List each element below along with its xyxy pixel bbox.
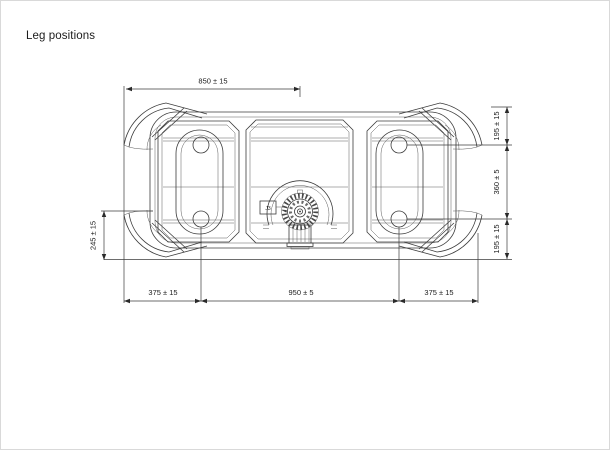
left-panel [158, 121, 239, 242]
dim-text-right-middle: 360 ± 5 [492, 170, 501, 195]
leg-pad-top-left [124, 103, 207, 150]
leg-position-back-right [391, 211, 407, 227]
dim-text-right-bottom: 195 ± 15 [492, 224, 501, 253]
dim-text-bottom-left: 375 ± 15 [148, 288, 177, 297]
panel-rib-lines [163, 127, 443, 223]
dimension-left-height: 245 ± 15 [89, 211, 154, 260]
dim-text-top-width: 850 ± 15 [198, 77, 227, 86]
pump-gear [282, 190, 319, 230]
leg-pad-top-right [399, 103, 482, 150]
leg-position-back-left [193, 211, 209, 227]
dim-text-bottom-center: 950 ± 5 [289, 288, 314, 297]
drawing-page: Leg positions [0, 0, 610, 450]
left-leg-mounts [176, 130, 223, 234]
dim-text-left-height: 245 ± 15 [89, 221, 98, 250]
part-label-text: J3 [265, 206, 271, 212]
technical-drawing-canvas: J3 850 ± 15 [1, 1, 610, 450]
part-label-callout: J3 [260, 201, 284, 214]
dim-text-bottom-right: 375 ± 15 [424, 288, 453, 297]
leg-position-front-left [193, 137, 209, 153]
right-leg-mounts [376, 130, 423, 234]
pump-motor-block [287, 225, 313, 249]
leg-position-front-right [391, 137, 407, 153]
right-panel [367, 121, 448, 242]
dimension-top-width: 850 ± 15 [126, 77, 300, 98]
dim-text-right-top: 195 ± 15 [492, 111, 501, 140]
pump-housing-arc [267, 181, 333, 225]
center-panel [246, 120, 353, 243]
